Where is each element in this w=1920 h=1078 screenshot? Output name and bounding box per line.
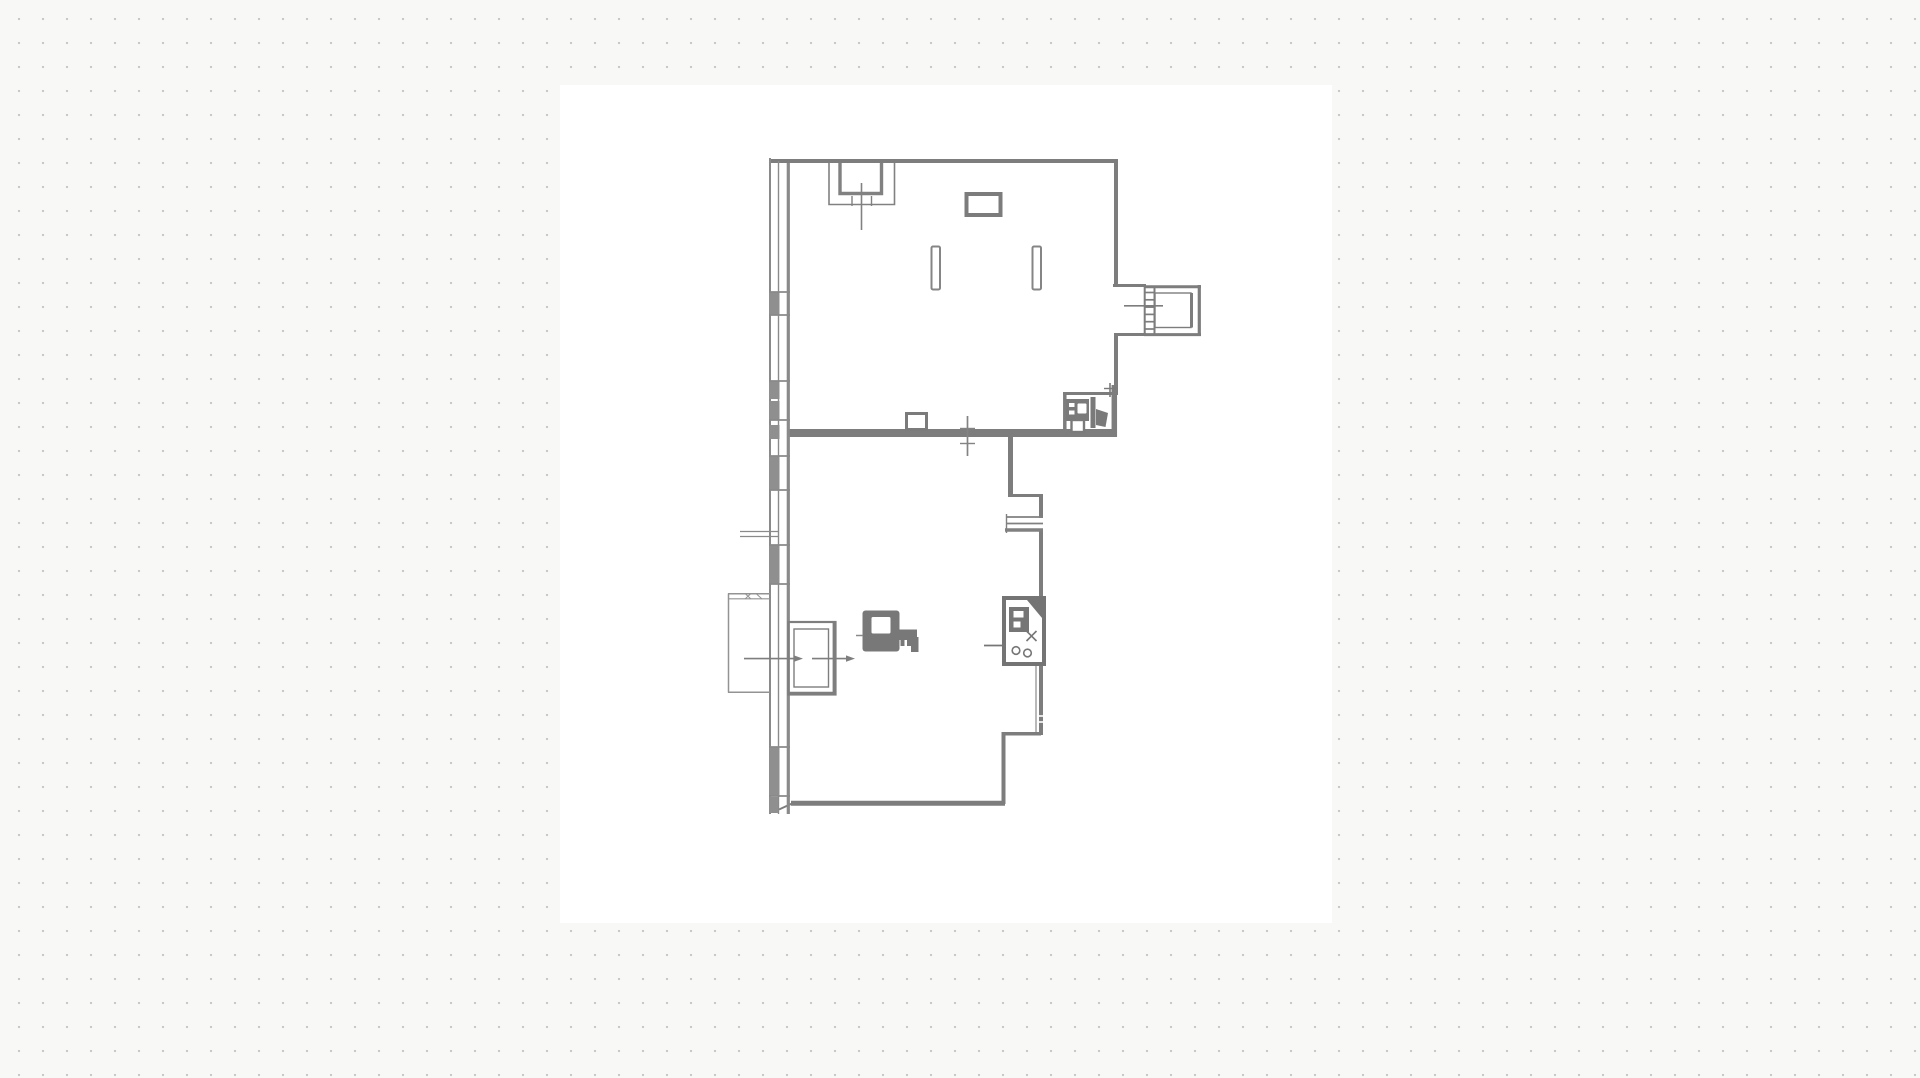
window-wall xyxy=(740,158,790,814)
floor-plan-image[interactable] xyxy=(560,85,1332,923)
wall-mounted-box xyxy=(907,414,927,430)
toilet-symbol xyxy=(856,611,919,653)
floor-plan-drawing xyxy=(560,85,1332,923)
section-arrows xyxy=(744,655,855,661)
floor-box xyxy=(1072,420,1085,432)
closet-box xyxy=(744,622,855,695)
columns xyxy=(932,247,1042,290)
counter-glyph xyxy=(1009,607,1029,632)
outer-walls xyxy=(769,159,1146,810)
vent-grille xyxy=(1005,514,1043,533)
canvas-background[interactable] xyxy=(0,0,1920,1078)
left-balcony xyxy=(728,594,770,693)
column-icon xyxy=(932,247,941,290)
wall-shaft-box xyxy=(967,194,1001,215)
wc-fixtures xyxy=(1066,383,1116,432)
toilet-icon xyxy=(1091,397,1096,428)
column-icon xyxy=(1033,247,1042,290)
top-left-shaft xyxy=(829,163,895,230)
kitchen-unit xyxy=(984,598,1044,664)
ladder-mullion xyxy=(1144,286,1155,335)
right-balcony-box xyxy=(1124,285,1201,336)
